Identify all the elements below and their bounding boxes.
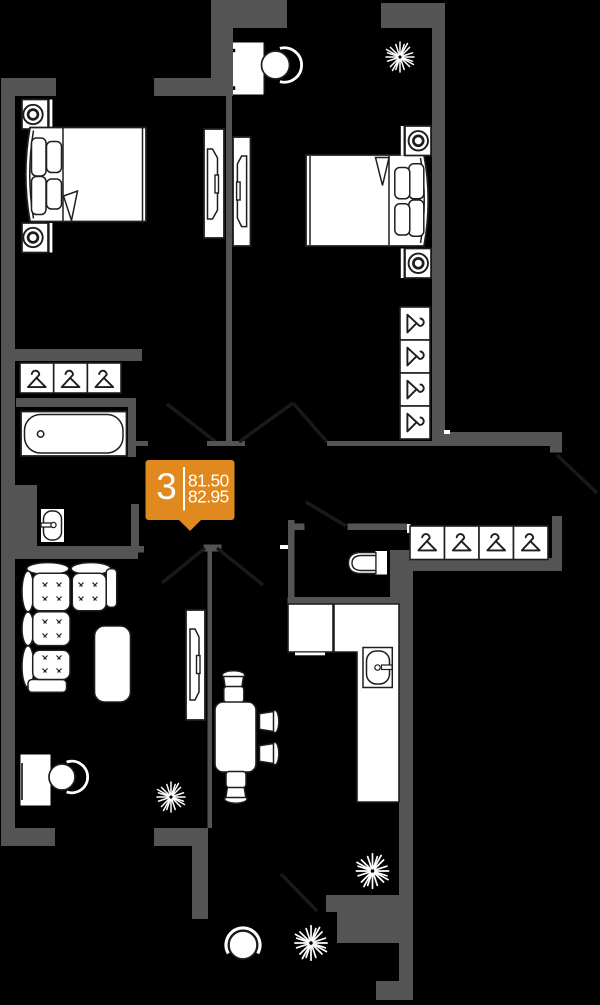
svg-text:3: 3	[156, 466, 177, 507]
svg-text:82.95: 82.95	[188, 486, 229, 506]
